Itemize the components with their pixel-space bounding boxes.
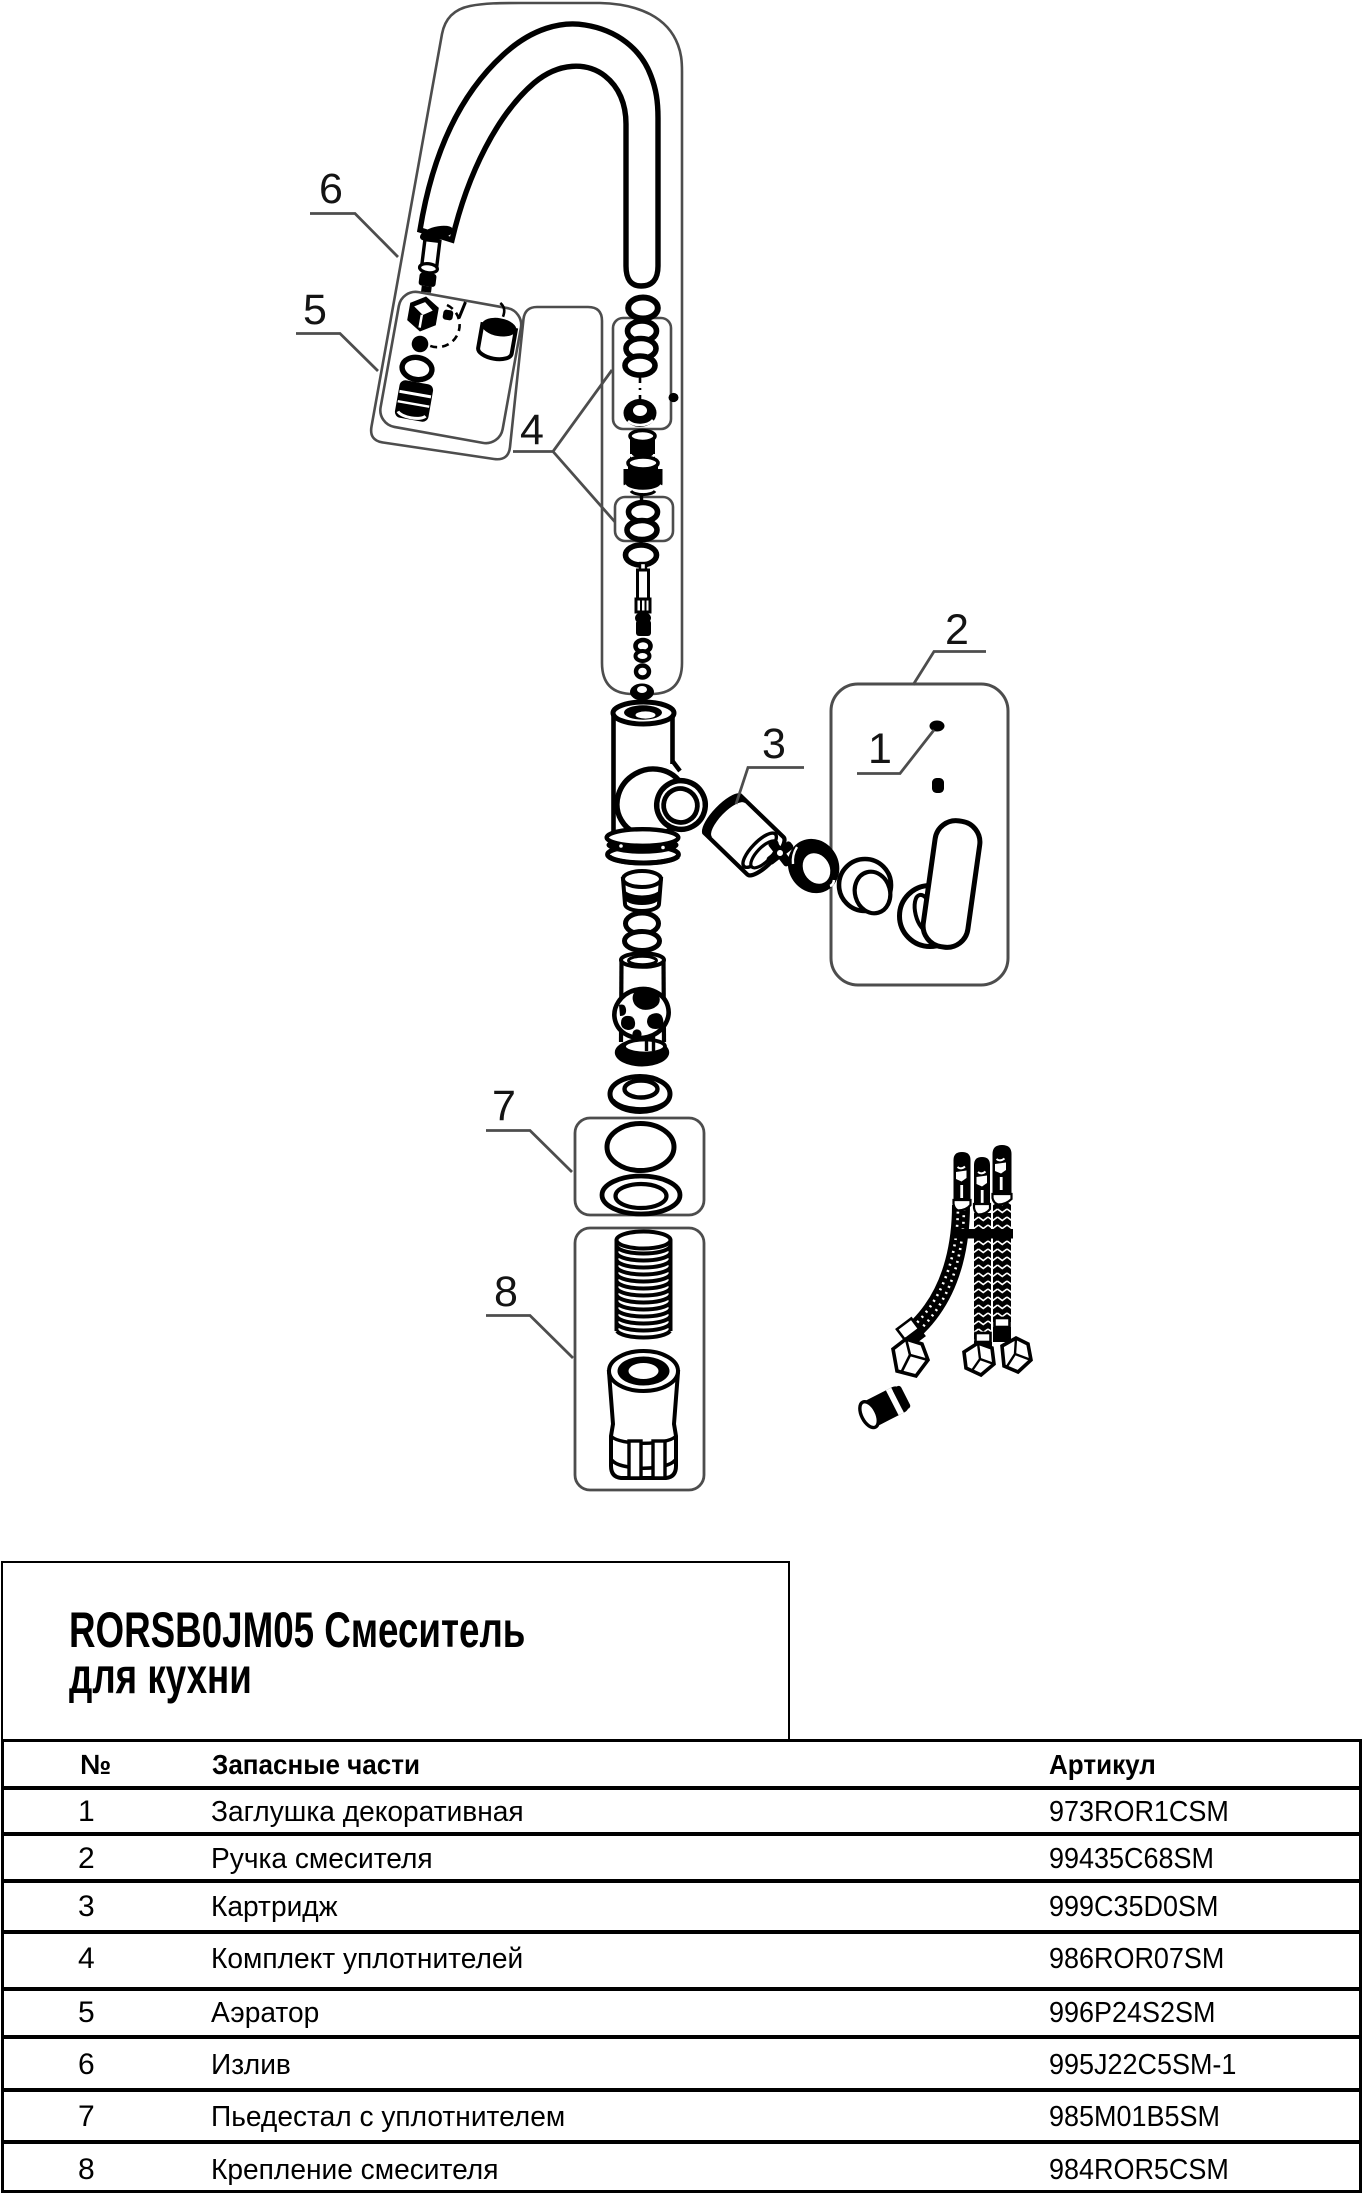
svg-text:8: 8 bbox=[494, 1268, 518, 1316]
svg-text:2: 2 bbox=[945, 606, 969, 654]
svg-text:5: 5 bbox=[303, 286, 327, 334]
svg-text:6: 6 bbox=[319, 165, 343, 213]
svg-text:3: 3 bbox=[762, 720, 786, 768]
svg-text:4: 4 bbox=[520, 406, 544, 454]
svg-text:1: 1 bbox=[868, 725, 892, 773]
svg-text:7: 7 bbox=[492, 1082, 516, 1130]
